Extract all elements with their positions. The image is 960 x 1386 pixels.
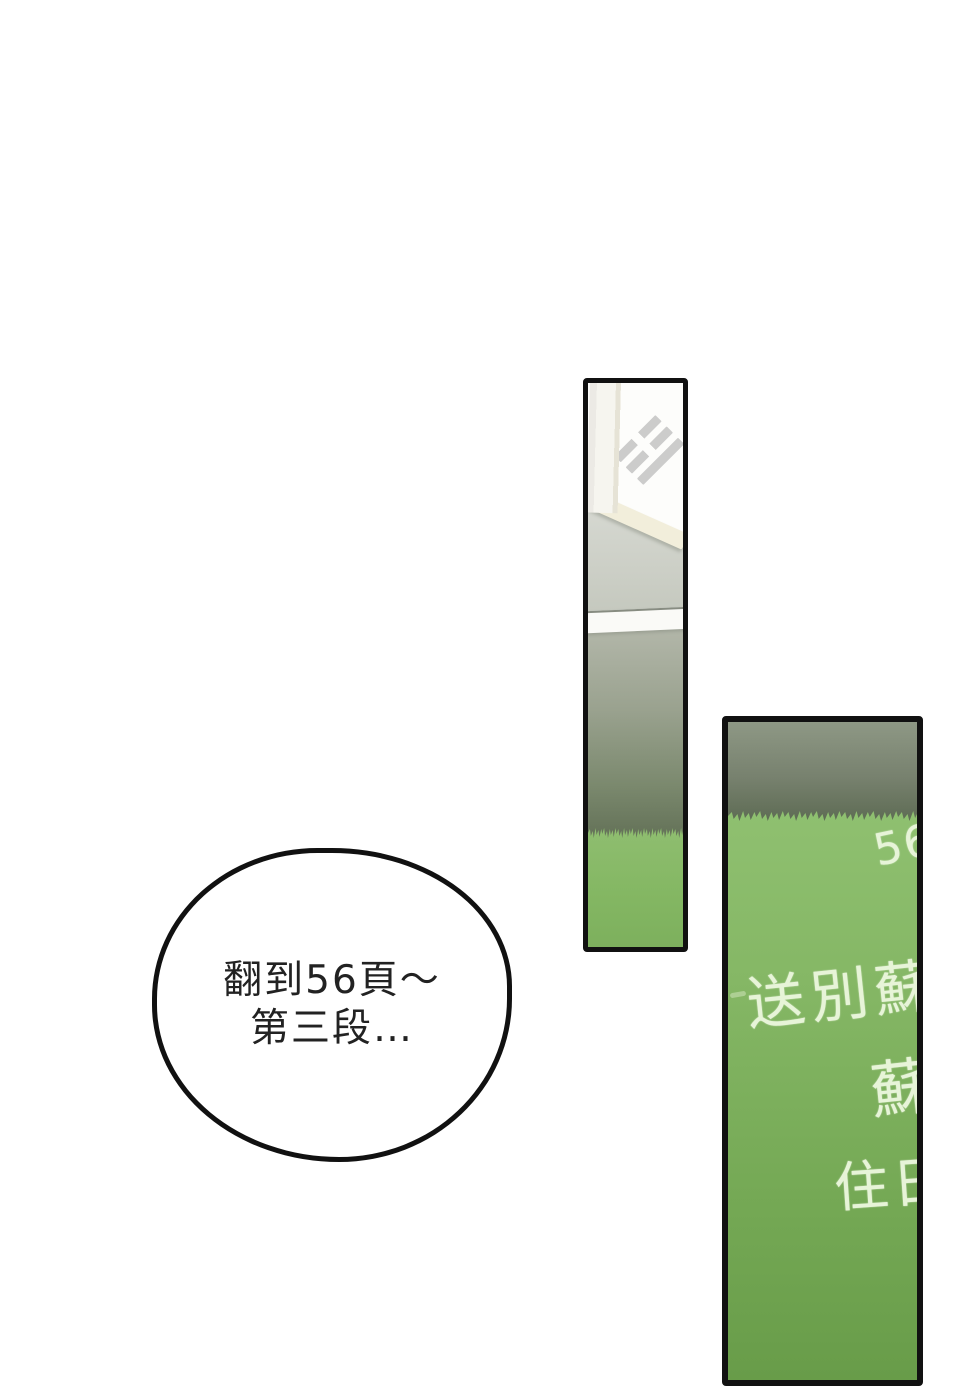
chalkboard-shadow-top xyxy=(728,722,917,824)
speech-bubble-text: 翻到56頁～ 第三段… xyxy=(223,957,441,1053)
wall-shadow-gradient xyxy=(588,623,683,839)
grass-field xyxy=(588,827,683,947)
comic-page: 56 送別蘇 蘇 住日 翻到56頁～ 第三段… xyxy=(0,0,960,1386)
window-ledge xyxy=(583,607,688,634)
chalk-text-line-3: 住日 xyxy=(831,1136,923,1223)
chalkboard-panel: 56 送別蘇 蘇 住日 xyxy=(722,716,923,1386)
speech-line-2: 第三段… xyxy=(223,1005,441,1053)
speech-line-1: 翻到56頁～ xyxy=(223,957,441,1005)
chalk-text-line-2: 蘇 xyxy=(865,1035,923,1131)
window-panel xyxy=(583,378,688,952)
speech-bubble: 翻到56頁～ 第三段… xyxy=(152,848,512,1162)
window-frame-vertical xyxy=(587,381,624,514)
